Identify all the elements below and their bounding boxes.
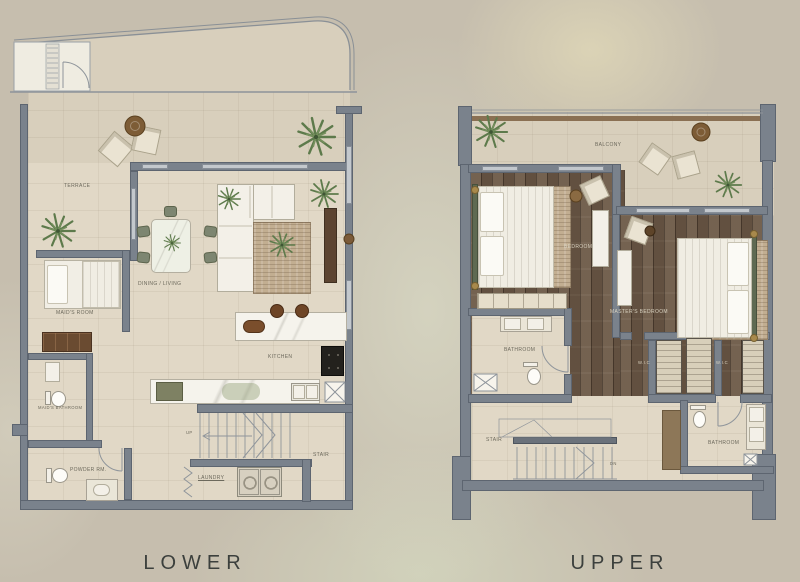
room-label-masters-bedroom: MASTER'S BEDROOM <box>610 309 668 315</box>
upper-stair-treads <box>499 419 617 479</box>
bedside-knobs <box>472 187 758 342</box>
room-label-kitchen: KITCHEN <box>268 354 292 360</box>
room-label-maids-bathroom: MAID'S BATHROOM <box>38 405 82 410</box>
room-label-terrace: TERRACE <box>64 183 90 189</box>
room-label-bathroom-1: BATHROOM <box>504 347 535 353</box>
room-label-bathroom-2: BATHROOM <box>708 440 739 446</box>
stair-direction-dn: DN <box>610 461 617 466</box>
room-label-stair-upper: STAIR <box>486 437 502 443</box>
stair-direction-up: UP <box>186 430 193 435</box>
room-label-wic-1: W.I.C <box>638 360 650 365</box>
room-label-wic-2: W.I.C <box>716 360 728 365</box>
room-label-bedroom: BEDROOM <box>564 244 592 250</box>
balcony-railing <box>472 110 763 113</box>
room-label-laundry: LAUNDRY <box>198 475 224 481</box>
room-label-dining-living: DINING / LIVING <box>138 281 181 287</box>
upper-floor-caption: UPPER <box>515 552 725 575</box>
laundry-accordion-door <box>184 467 192 497</box>
room-label-powder-rm: POWDER RM. <box>70 467 107 473</box>
plants <box>42 116 741 257</box>
entry-structure <box>14 42 90 91</box>
room-label-stair-lower: STAIR <box>313 452 329 458</box>
room-label-balcony: BALCONY <box>595 142 621 148</box>
service-shafts <box>325 374 757 465</box>
plan-linework <box>0 0 800 582</box>
room-label-maids-room: MAID'S ROOM <box>56 310 94 316</box>
round-tables <box>125 116 710 244</box>
lower-stair-treads <box>200 413 290 458</box>
lower-floor-caption: LOWER <box>90 552 300 575</box>
floorplan-sheet: TERRACE DINING / LIVING KITCHEN MAID'S R… <box>0 0 800 582</box>
